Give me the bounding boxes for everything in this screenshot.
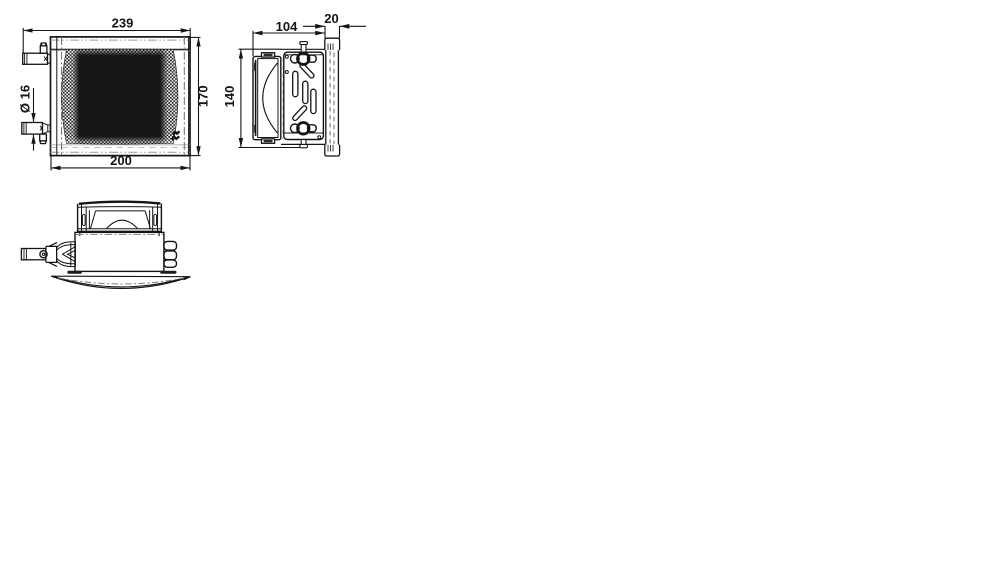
svg-text:104: 104 bbox=[276, 19, 298, 34]
svg-text:140: 140 bbox=[222, 86, 237, 108]
svg-text:239: 239 bbox=[112, 16, 134, 31]
svg-text:Ø 16: Ø 16 bbox=[18, 85, 33, 113]
svg-text:170: 170 bbox=[196, 85, 211, 107]
svg-text:20: 20 bbox=[324, 11, 338, 26]
svg-text:200: 200 bbox=[110, 153, 132, 168]
